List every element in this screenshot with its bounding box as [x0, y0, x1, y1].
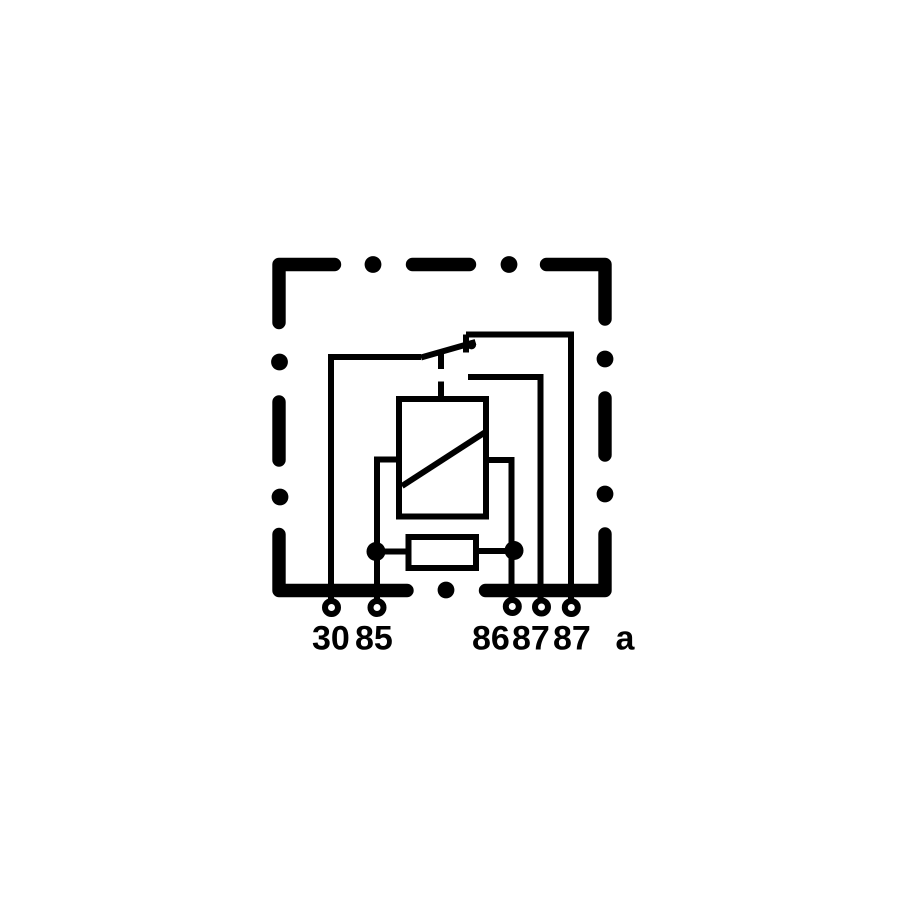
svg-text:30: 30 [312, 620, 350, 658]
svg-text:86: 86 [472, 620, 510, 658]
svg-text:a: a [616, 620, 636, 658]
svg-text:87: 87 [553, 620, 591, 658]
svg-text:85: 85 [355, 620, 393, 658]
svg-text:87: 87 [512, 620, 550, 658]
